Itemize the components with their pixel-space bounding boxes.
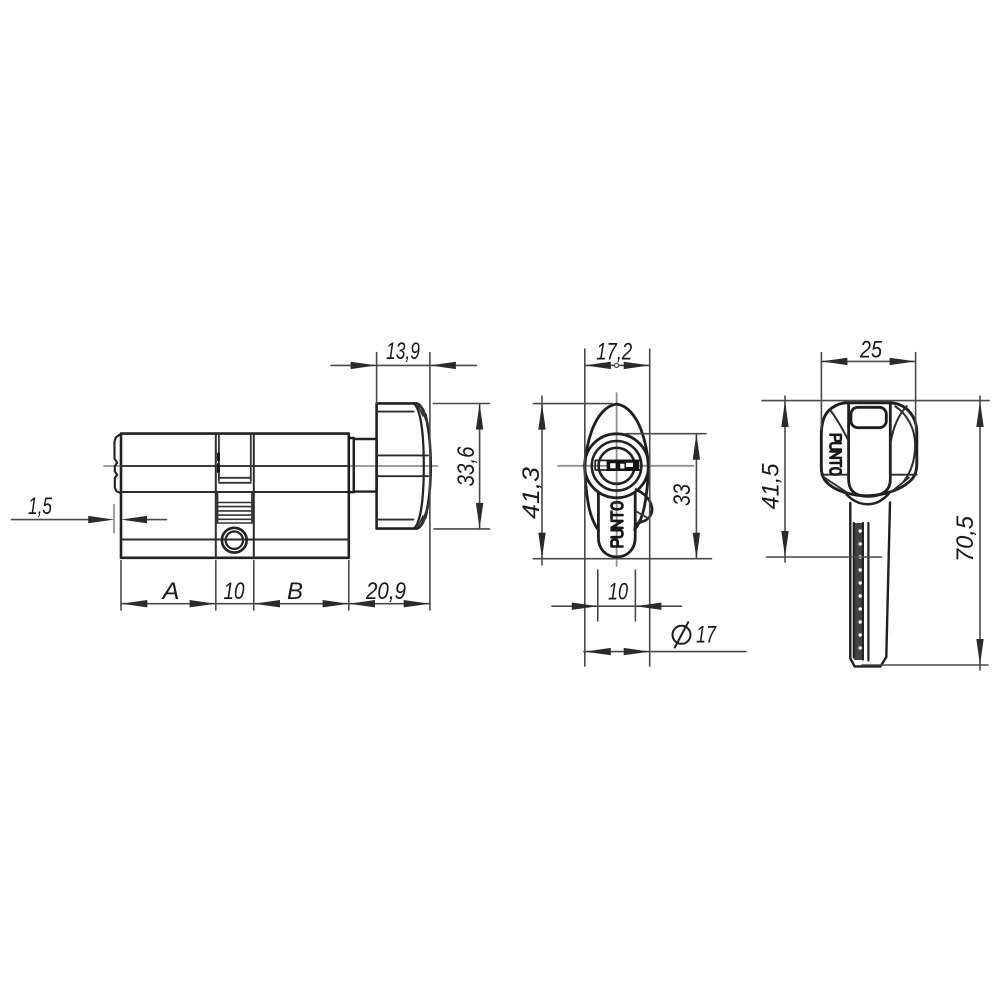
svg-text:20,9: 20,9 (365, 578, 406, 605)
svg-text:33: 33 (669, 484, 696, 506)
svg-text:10: 10 (224, 578, 245, 605)
svg-text:33,6: 33,6 (453, 446, 480, 486)
svg-text:1,5: 1,5 (28, 493, 52, 520)
svg-text:41,3: 41,3 (518, 467, 545, 519)
svg-text:17,2: 17,2 (596, 339, 632, 366)
svg-text:13,9: 13,9 (386, 338, 420, 365)
svg-text:B: B (287, 578, 303, 605)
svg-text:17: 17 (696, 622, 717, 649)
svg-text:41,5: 41,5 (758, 463, 785, 509)
svg-text:25: 25 (859, 337, 882, 364)
svg-text:A: A (160, 578, 179, 605)
svg-text:70,5: 70,5 (952, 516, 979, 562)
svg-text:10: 10 (608, 579, 628, 606)
